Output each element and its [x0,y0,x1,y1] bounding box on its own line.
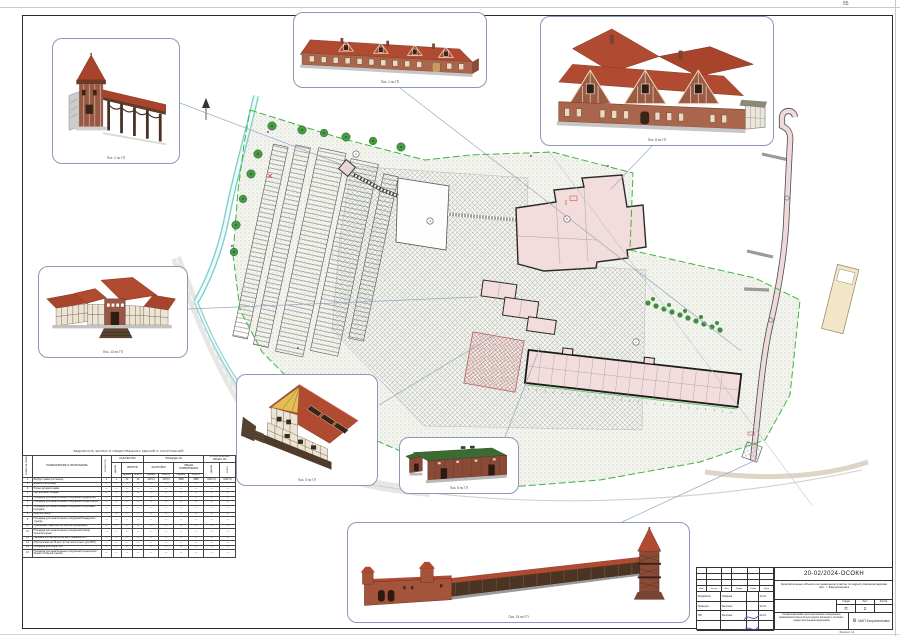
role-label: Разработал [697,592,721,602]
organization-logo: ⚙ МАП Багратионовск [849,613,893,629]
table-row: 15 Площадка для некапитальных сооружений… [23,550,236,557]
group-header-area: ПЛОЩАДЬ, М2 [144,456,204,463]
table-row: 11 Площадка для некапитальных сооружений… [23,529,236,536]
project-name: Некапитальные объекты на земельном участ… [775,581,893,600]
signature-rows: Разработал Габараев 02.24 Проверил Рассо… [697,592,774,631]
col-header-vol-total: ВСЕГО [220,463,236,478]
role-label: ГАП [697,611,721,621]
callout-pos8: Поз. 8 по ГП [540,16,774,146]
sheets-value [875,605,893,613]
group-header-footprint: ЗАСТРОЙКИ [144,463,174,473]
callout-caption: Поз. 2 по ГП [107,157,125,161]
role-name: Габараев [721,592,747,602]
stage-grid: Стадия Лист Листов П 2 [837,600,893,612]
role-name: Рассохин [721,611,747,621]
drawing-sheet: 55 [0,0,900,636]
revision-grid: Изм. Кол.уч Лист №док. Подп. Дата [697,568,774,592]
render-pos1-rowhouse [298,16,482,80]
role-name: Рассохин [721,602,747,612]
group-header-normarea: ОБЩАЯ НОРМИРУЕМАЯ [174,463,204,473]
role-signature [747,602,759,612]
callout-caption: Поз. 13 по ГП [103,351,123,355]
render-pos5-house [241,378,373,478]
sheet-value: 2 [856,605,875,613]
callout-pos13: Поз. 13 по ГП [38,266,188,358]
render-pos8-manor [545,20,769,138]
role-date: 02.24 [759,592,774,602]
callout-pos5: Поз. 5 по ГП [236,374,378,486]
col-header-number: НОМЕР НА ПЛАНЕ [23,456,33,478]
table-row: 7 Площадка для некапитальных сооружений … [23,505,236,512]
sheet-title-row: Схема компоновки пространственных и визу… [775,613,893,629]
organization-name: МАП Багратионовск [858,619,890,623]
callout-caption: Поз. 6 по ГП [450,487,468,491]
spare-cell [775,600,837,612]
callout-caption: Поз. 15 по ГП [508,616,528,620]
document-number: 20-02/2024-ОСОКН [775,568,893,581]
vedomost-table: НОМЕР НА ПЛАНЕ НАИМЕНОВАНИЕ И ОБОЗНАЧЕНИ… [22,455,236,558]
group-header-qty: КОЛИЧЕСТВО [112,456,144,463]
render-pos2-tower [57,42,175,156]
stage-row: Стадия Лист Листов П 2 [775,600,893,613]
title-block: Изм. Кол.уч Лист №док. Подп. Дата Разраб… [696,567,893,630]
role-signature [747,592,759,602]
title-block-right: 20-02/2024-ОСОКН Некапитальные объекты н… [775,568,893,629]
table-body: 1 Форбург замка (гостиница) 41 4242 1270… [23,478,236,557]
group-header-apartments: КВАРТИР [122,463,144,473]
col-header-buildings: ЗДАНИЙ [112,463,122,478]
gear-icon: ⚙ [852,619,856,624]
callout-caption: Поз. 1 по ГП [381,81,399,85]
col-header-name: НАИМЕНОВАНИЕ И ОБОЗНАЧЕНИЕ [33,456,102,478]
format-note: Формат А1 [800,630,894,634]
role-date: 02.24 [759,611,774,621]
callout-pos1: Поз. 1 по ГП [293,12,487,88]
table-title: ВЕДОМОСТЬ ЖИЛЫХ И ОБЩЕСТВЕННЫХ ЗДАНИЙ И … [22,447,235,455]
stage-value: П [837,605,856,613]
title-block-left: Изм. Кол.уч Лист №док. Подп. Дата Разраб… [697,568,775,629]
callout-caption: Поз. 5 по ГП [298,479,316,483]
callout-caption: Поз. 8 по ГП [648,139,666,143]
plan-red-square [464,332,524,392]
callout-pos6: Поз. 6 по ГП [399,437,519,494]
role-signature [747,611,759,621]
col-header-vol-buildings: ЗДАНИЙ [204,463,220,478]
plan-beige-plot [822,264,859,333]
render-pos15-wall [352,526,685,615]
north-arrow-icon [202,98,210,120]
render-pos13-halftimber [43,270,183,350]
group-header-volume: СТРОИТЕЛЬНЫЙ ОБЪЕМ, М3 [204,456,236,463]
render-pos6-storehouse [404,441,514,486]
col-header-floors: ЭТАЖНОСТЬ [102,456,112,478]
table-row: 9 Площадка для некапитальных сооружений … [23,517,236,524]
callout-pos2: Поз. 2 по ГП [52,38,180,164]
callout-pos15: Поз. 15 по ГП [347,522,690,623]
sheet-title: Схема компоновки пространственных и визу… [775,613,849,629]
buildings-table: ВЕДОМОСТЬ ЖИЛЫХ И ОБЩЕСТВЕННЫХ ЗДАНИЙ И … [22,447,235,558]
role-label: Проверил [697,602,721,612]
role-date: 02.24 [759,602,774,612]
